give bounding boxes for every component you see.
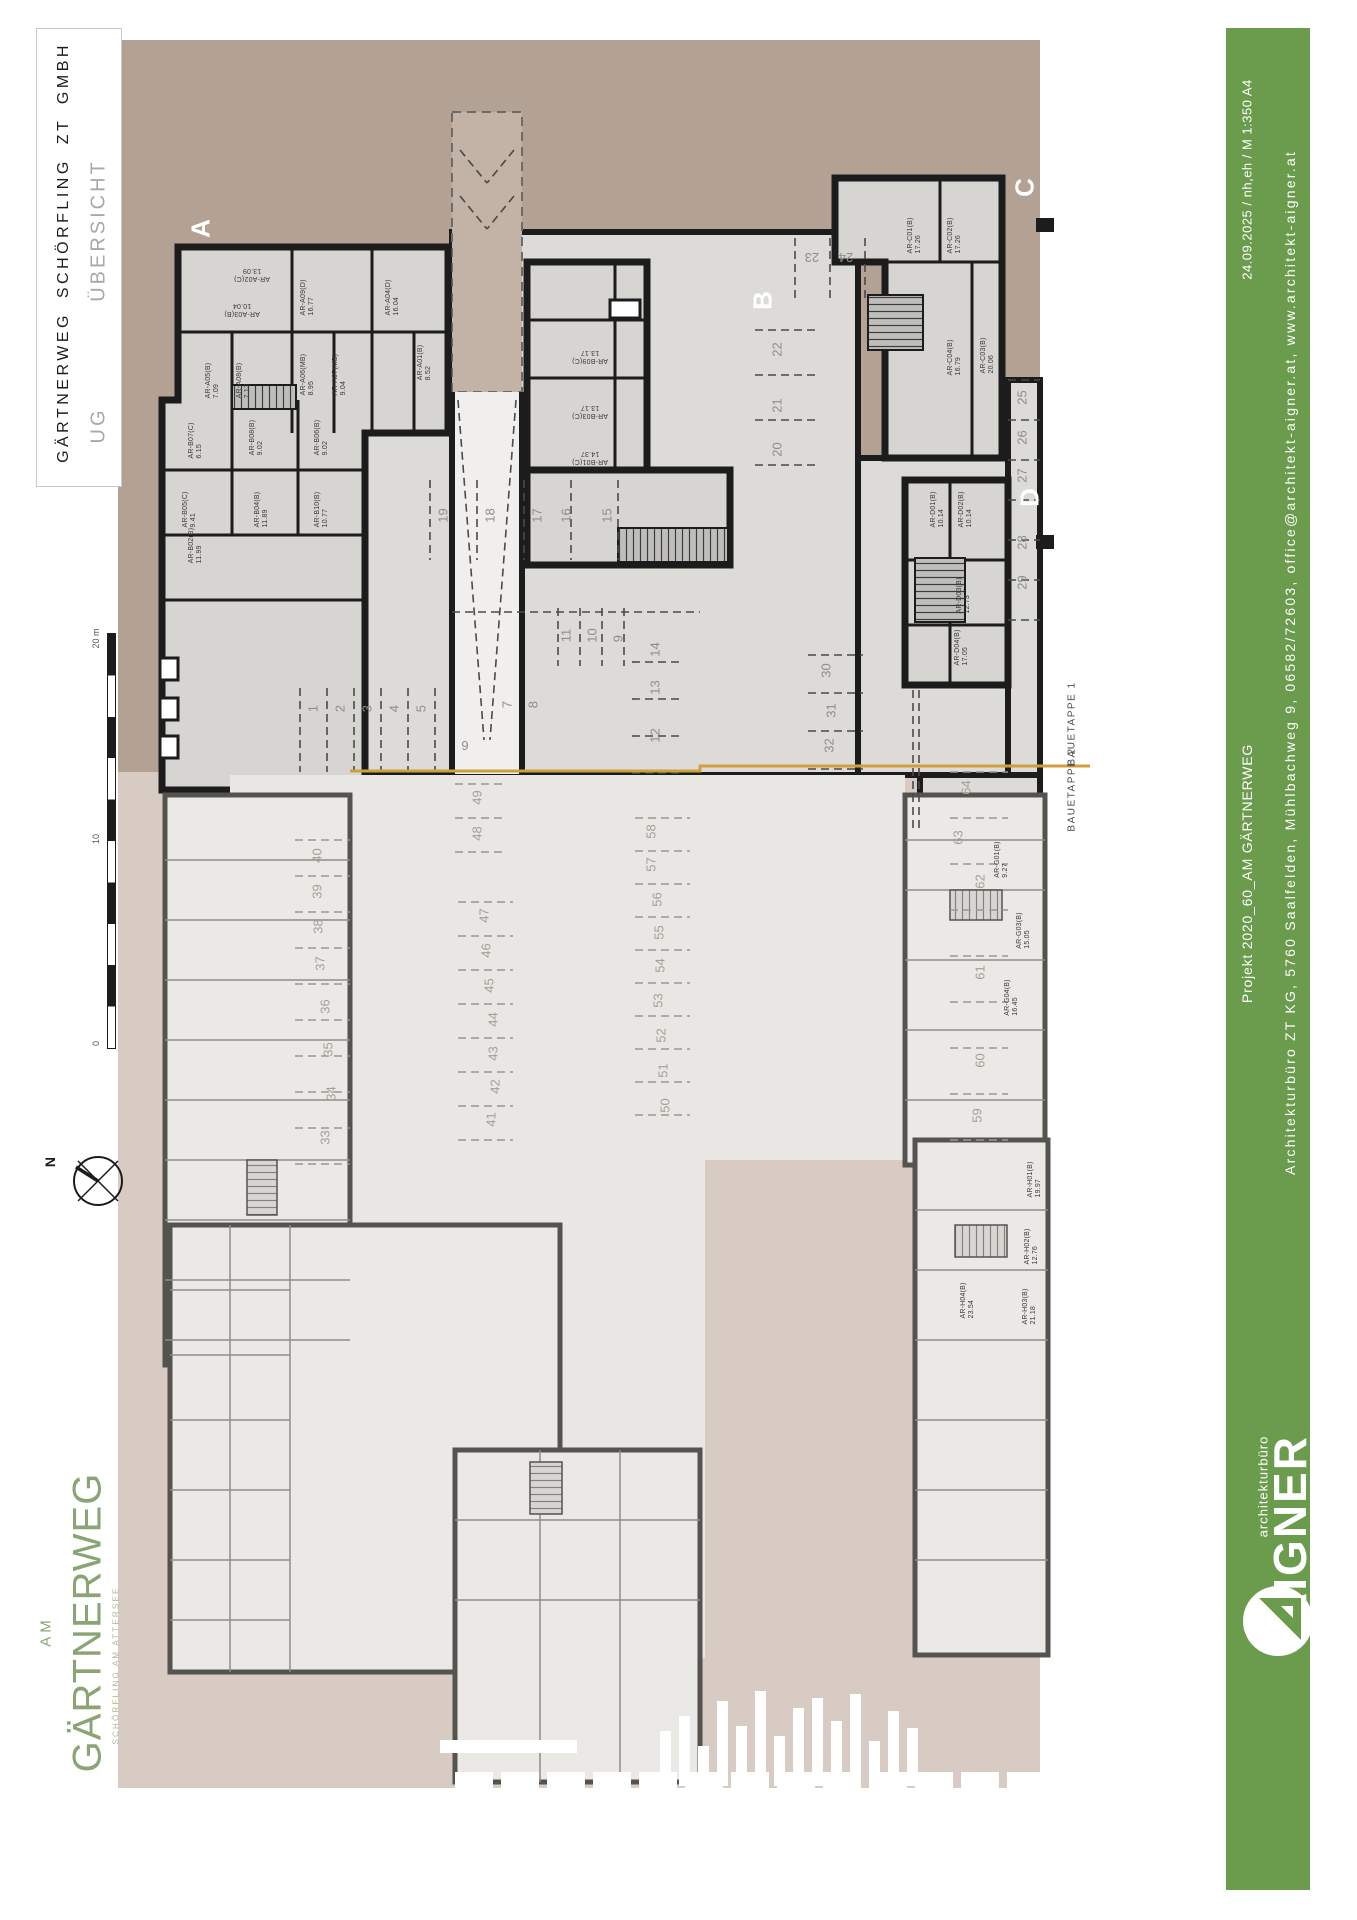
room-label: AR-B04(B)11.89 <box>254 492 270 533</box>
room-label: AR-D03(B)12.73 <box>956 577 972 618</box>
room-label: AR-D04(B)17.05 <box>954 629 970 670</box>
parking-number: 46 <box>479 943 494 962</box>
room-label: AR-B03(C)13.17 <box>572 403 608 421</box>
parking-number: 23 <box>805 249 819 267</box>
parking-number: 40 <box>310 848 325 867</box>
parking-number: 50 <box>658 1098 673 1117</box>
room-label: AR-A07(MB)9.04 <box>332 354 348 401</box>
room-label: AR-D01(B)10.14 <box>930 491 946 532</box>
room-label: AR-H01(B)19.97 <box>1027 1161 1043 1202</box>
room-label: AR-A01(B)8.52 <box>417 345 433 386</box>
room-label: AR-D02(B)10.14 <box>958 491 974 532</box>
parking-number: 14 <box>648 642 663 661</box>
stage-label: BAUETAPPE 1 <box>1067 681 1078 770</box>
parking-number: 10 <box>585 628 600 647</box>
room-label: AR-A06(MB)8.95 <box>300 354 316 401</box>
parking-number: 12 <box>648 728 663 747</box>
room-label: AR-B07(C)6.15 <box>188 422 204 463</box>
room-label: AR-G01(B)9.27 <box>994 841 1010 882</box>
parking-number: 33 <box>318 1130 333 1149</box>
parking-number: 25 <box>1015 390 1030 409</box>
parking-number: 27 <box>1015 468 1030 487</box>
room-label: AR-A03(B)10.04 <box>224 301 260 319</box>
aigner-a-circle-icon <box>1241 1584 1315 1658</box>
parking-number: 48 <box>470 826 485 845</box>
parking-number: 31 <box>824 703 839 722</box>
parking-number: 64 <box>959 780 974 799</box>
parking-number: 15 <box>600 508 615 527</box>
room-label: AR-H02(B)12.76 <box>1024 1228 1040 1269</box>
parking-number: 63 <box>951 830 966 849</box>
section-letter-C: C <box>1010 178 1041 202</box>
parking-number: 9 <box>611 629 626 647</box>
parking-number: 59 <box>970 1108 985 1127</box>
room-label: AR-B10(B)10.77 <box>314 492 330 533</box>
room-label: AR-B08(B)9.02 <box>249 420 265 461</box>
parking-number: 41 <box>484 1112 499 1131</box>
parking-number: 18 <box>483 508 498 527</box>
parking-number: 8 <box>526 695 541 713</box>
stage-label: BAUETAPPE 2 <box>1067 747 1078 836</box>
section-letter-D: D <box>1015 488 1046 512</box>
section-letter-B: B <box>748 291 779 315</box>
parking-number: 28 <box>1015 535 1030 554</box>
parking-number: 57 <box>644 857 659 876</box>
compass-circle-icon <box>70 1153 126 1209</box>
room-label: AR-G04(B)16.45 <box>1004 979 1020 1020</box>
parking-number: 61 <box>973 965 988 984</box>
parking-number: 22 <box>770 342 785 361</box>
parking-number: 5 <box>414 699 429 717</box>
parking-number: 38 <box>311 919 326 938</box>
parking-number: 3 <box>360 699 375 717</box>
room-label: AR-B09(C)13.17 <box>572 348 608 366</box>
parking-number: 2 <box>333 699 348 717</box>
section-letter-A: A <box>186 219 217 243</box>
parking-number: 44 <box>486 1012 501 1031</box>
parking-number: 20 <box>770 442 785 461</box>
room-label: AR-B06(B)9.02 <box>314 420 330 461</box>
parking-number: 55 <box>652 925 667 944</box>
parking-number: 24 <box>839 249 853 267</box>
parking-number: 37 <box>313 956 328 975</box>
room-label: AR-B05(C)9.41 <box>182 491 198 532</box>
parking-number: 17 <box>530 508 545 527</box>
parking-number: 30 <box>819 663 834 682</box>
room-label: AR-A04(D)16.04 <box>385 279 401 320</box>
room-label: AR-B02(B)11.99 <box>188 528 204 569</box>
parking-number: 47 <box>477 908 492 927</box>
parking-number: 51 <box>656 1063 671 1082</box>
parking-number: 60 <box>973 1053 988 1072</box>
parking-number: 62 <box>973 874 988 893</box>
room-label: AR-A08(B)7.13 <box>236 363 252 404</box>
parking-number: 26 <box>1015 430 1030 449</box>
room-label: AR-H03(B)21.18 <box>1022 1288 1038 1329</box>
parking-number: 52 <box>654 1028 669 1047</box>
parking-number: 4 <box>387 699 402 717</box>
room-label: AR-G03(B)15.05 <box>1016 912 1032 953</box>
scale-bar <box>107 633 116 1049</box>
room-label: AR-B01(C)14.37 <box>572 449 608 467</box>
parking-number: 54 <box>653 958 668 977</box>
title-block <box>36 28 122 487</box>
parking-number: 32 <box>822 738 837 757</box>
room-label: AR-C02(B)17.26 <box>947 217 963 258</box>
parking-number: 35 <box>321 1042 336 1061</box>
parking-number: 36 <box>318 999 333 1018</box>
drawing-sheet: ABCDBAUETAPPE 1BAUETAPPE 2AR-A02(C)13.09… <box>0 0 1357 1920</box>
parking-number: 34 <box>324 1086 339 1105</box>
room-label: AR-C04(B)16.79 <box>947 339 963 380</box>
parking-number: 19 <box>436 508 451 527</box>
room-label: AR-A02(C)13.09 <box>234 266 270 284</box>
parking-number: 6 <box>461 737 468 755</box>
parking-number: 7 <box>500 695 515 713</box>
parking-number: 21 <box>770 398 785 417</box>
parking-number: 29 <box>1015 575 1030 594</box>
parking-number: 58 <box>644 824 659 843</box>
room-label: AR-C01(B)17.26 <box>907 217 923 258</box>
parking-number: 39 <box>310 884 325 903</box>
room-label: AR-H04(B)23.54 <box>960 1282 976 1323</box>
parking-number: 43 <box>486 1046 501 1065</box>
room-label: AR-C03(B)20.06 <box>980 337 996 378</box>
parking-number: 16 <box>559 508 574 527</box>
room-label: AR-A09(D)16.77 <box>300 279 316 320</box>
room-label: AR-A05(B)7.09 <box>205 363 221 404</box>
parking-number: 56 <box>650 892 665 911</box>
parking-number: 11 <box>559 629 574 648</box>
parking-number: 45 <box>482 978 497 997</box>
parking-number: 1 <box>306 699 321 717</box>
parking-number: 42 <box>488 1079 503 1098</box>
parking-number: 49 <box>470 790 485 809</box>
parking-number: 53 <box>651 993 666 1012</box>
plan-labels: ABCDBAUETAPPE 1BAUETAPPE 2AR-A02(C)13.09… <box>0 0 1357 1920</box>
parking-number: 13 <box>648 680 663 699</box>
